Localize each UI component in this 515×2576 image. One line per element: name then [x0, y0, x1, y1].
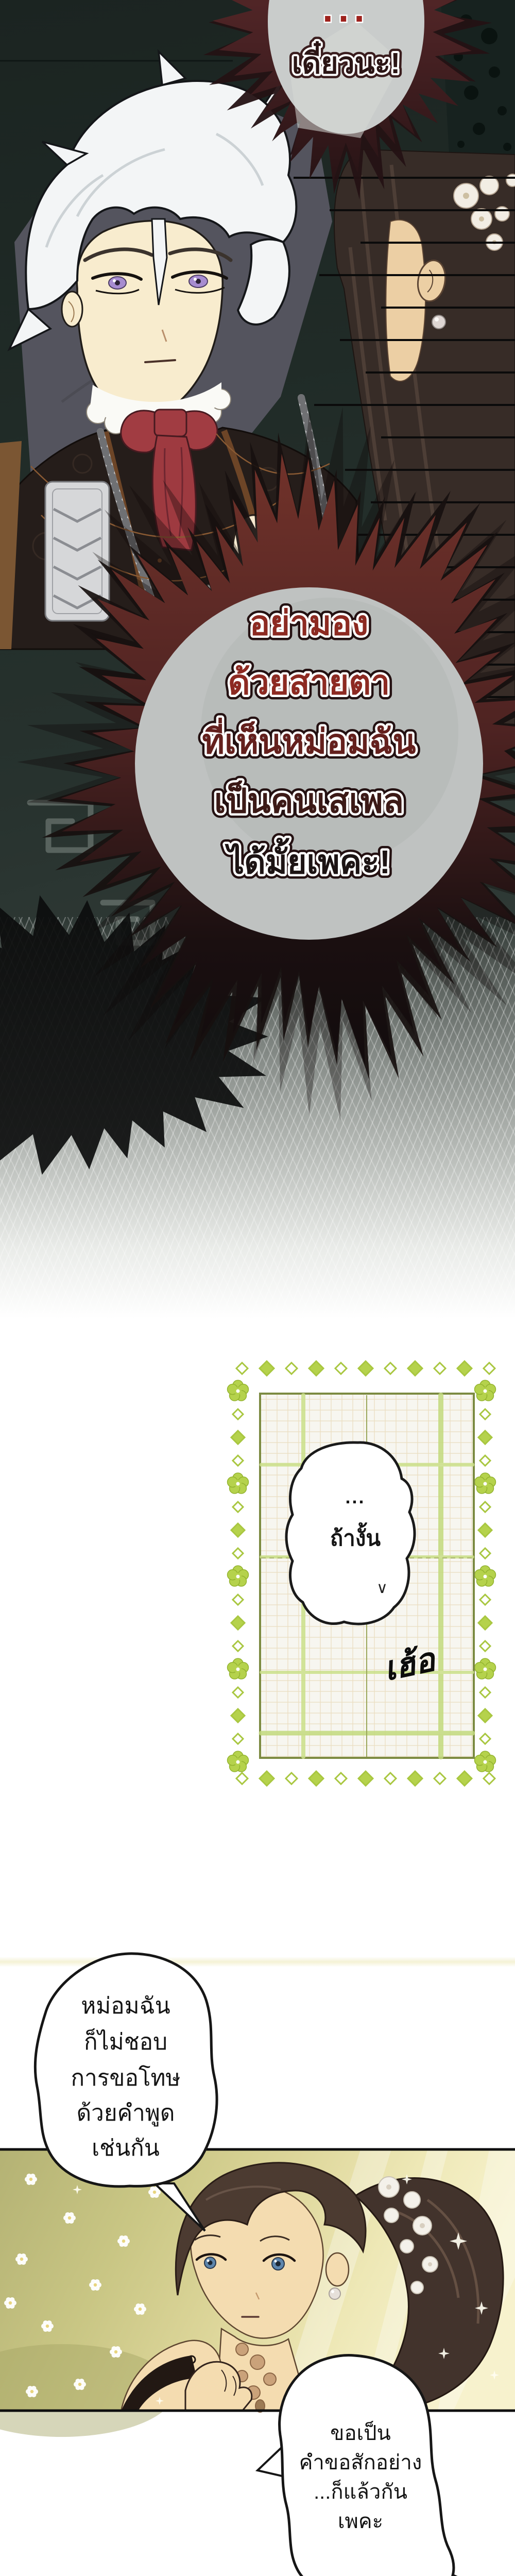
speech-bubbles: หม่อมฉัน ก็ไม่ชอบ การขอโทษ ด้วยคำพูด เช่… [0, 1906, 515, 2576]
diamond-icon [286, 1363, 297, 1374]
flower-center [484, 1482, 487, 1486]
flower-center [484, 1760, 487, 1764]
diamond-icon [335, 1773, 347, 1784]
bubble-tail [154, 2183, 205, 2231]
flower-center [484, 1668, 487, 1671]
diamond-icon [286, 1773, 297, 1784]
diamond-icon [236, 1773, 248, 1784]
pause-text: ถ้างั้น [330, 1522, 381, 1550]
diamond-icon [480, 1734, 490, 1744]
diamond-icon [231, 1709, 245, 1722]
diamond-icon [480, 1641, 490, 1651]
diamond-icon [408, 1771, 422, 1786]
apology-line-4: ด้วยคำพูด [77, 2100, 175, 2127]
burst-line-2: ด้วยสายตา [228, 663, 390, 701]
webtoon-page: ... เดี๋ยวนะ! เดี๋ยวนะ! อย่ามอง ด้วยสายต… [0, 0, 515, 2576]
diamond-icon [233, 1455, 243, 1466]
diamond-icon [478, 1523, 492, 1537]
dark-scene: ... เดี๋ยวนะ! เดี๋ยวนะ! อย่ามอง ด้วยสายต… [0, 0, 515, 1108]
request-line-3: ...ก็แล้วกัน [314, 2479, 407, 2503]
diamond-icon [478, 1709, 492, 1722]
diamond-icon [233, 1502, 243, 1512]
diamond-icon [480, 1687, 490, 1698]
diamond-icon [309, 1771, 323, 1786]
pause-bubble: ... ถ้างั้น ∨ [286, 1443, 415, 1624]
apology-line-3: การขอโทษ [71, 2065, 180, 2091]
request-bubble: ขอเป็น คำขอสักอย่าง ...ก็แล้วกัน เพคะ [257, 2355, 454, 2576]
diamond-icon [480, 1455, 490, 1466]
diamond-icon [358, 1771, 373, 1786]
flower-center [236, 1760, 240, 1764]
flower-icon [228, 1380, 249, 1401]
apology-line-1: หม่อมฉัน [81, 1993, 170, 2019]
lattice-panel: ... ถ้างั้น ∨ เฮ้อ [0, 1360, 515, 1788]
left-eye-highlight [113, 279, 116, 282]
diamond-icon [231, 1616, 245, 1630]
diamond-icon [233, 1687, 243, 1698]
diamond-icon [480, 1409, 490, 1419]
diamond-icon [231, 1431, 245, 1444]
burst-line-1: อย่ามอง [250, 604, 369, 642]
burst-line-5: ได้มั้ยเพคะ! [225, 838, 390, 880]
flower-center [484, 1389, 487, 1393]
diamond-icon [484, 1773, 495, 1784]
shout-text: เดี๋ยวนะ! [292, 41, 400, 80]
diamond-icon [233, 1409, 243, 1419]
neck-skin [386, 220, 425, 381]
left-ear [62, 292, 82, 327]
hair-tuft [159, 52, 185, 85]
diamond-icon [434, 1363, 445, 1374]
diamond-icon [484, 1363, 495, 1374]
request-line-1: ขอเป็น [330, 2420, 391, 2445]
request-line-2: คำขอสักอย่าง [299, 2451, 422, 2474]
request-line-4: เพคะ [338, 2510, 383, 2533]
shout-ellipsis: ... [322, 0, 370, 30]
diamond-icon [260, 1771, 274, 1786]
flower-center [236, 1389, 240, 1393]
diamond-icon [478, 1616, 492, 1630]
flower-icon [475, 1473, 496, 1494]
pearl-earring [432, 315, 445, 329]
flower-icon [228, 1658, 249, 1679]
diamond-icon [358, 1361, 373, 1376]
burst-line-3: ที่เห็นหม่อมฉัน [202, 717, 416, 760]
diamond-icon [385, 1773, 396, 1784]
diamond-icon [231, 1523, 245, 1537]
flower-icon [475, 1751, 496, 1772]
diamond-icon [233, 1641, 243, 1651]
diamond-icon [408, 1361, 422, 1376]
flower-icon [228, 1566, 249, 1586]
diamond-icon [480, 1502, 490, 1512]
pause-ellipsis: ... [345, 1486, 365, 1507]
right-eye-highlight [194, 278, 197, 281]
apology-line-2: ก็ไม่ชอบ [84, 2028, 167, 2055]
diamond-icon [457, 1361, 472, 1376]
flower-icon [475, 1566, 496, 1586]
diamond-icon [480, 1548, 490, 1558]
flower-icon [228, 1751, 249, 1772]
diamond-icon [309, 1361, 323, 1376]
flower-icon [228, 1473, 249, 1494]
flower-center [484, 1575, 487, 1579]
flower-center [236, 1668, 240, 1671]
flower-center [236, 1482, 240, 1486]
burst-line-4: เป็นคนเสเพล [214, 780, 404, 820]
flower-icon [475, 1380, 496, 1401]
diamond-icon [434, 1773, 445, 1784]
apology-line-5: เช่นกัน [92, 2136, 160, 2161]
pause-mark: ∨ [376, 1580, 388, 1597]
diamond-icon [236, 1363, 248, 1374]
diamond-icon [478, 1431, 492, 1444]
diamond-icon [385, 1363, 396, 1374]
diamond-icon [233, 1595, 243, 1605]
diamond-icon [457, 1771, 472, 1786]
diamond-icon [335, 1363, 347, 1374]
diamond-icon [233, 1734, 243, 1744]
flower-icon [475, 1658, 496, 1679]
diamond-icon [480, 1595, 490, 1605]
apology-bubble: หม่อมฉัน ก็ไม่ชอบ การขอโทษ ด้วยคำพูด เช่… [35, 1954, 217, 2231]
pearl-highlight [435, 317, 439, 321]
diamond-icon [260, 1361, 274, 1376]
diamond-icon [233, 1548, 243, 1558]
flower-center [236, 1575, 240, 1579]
